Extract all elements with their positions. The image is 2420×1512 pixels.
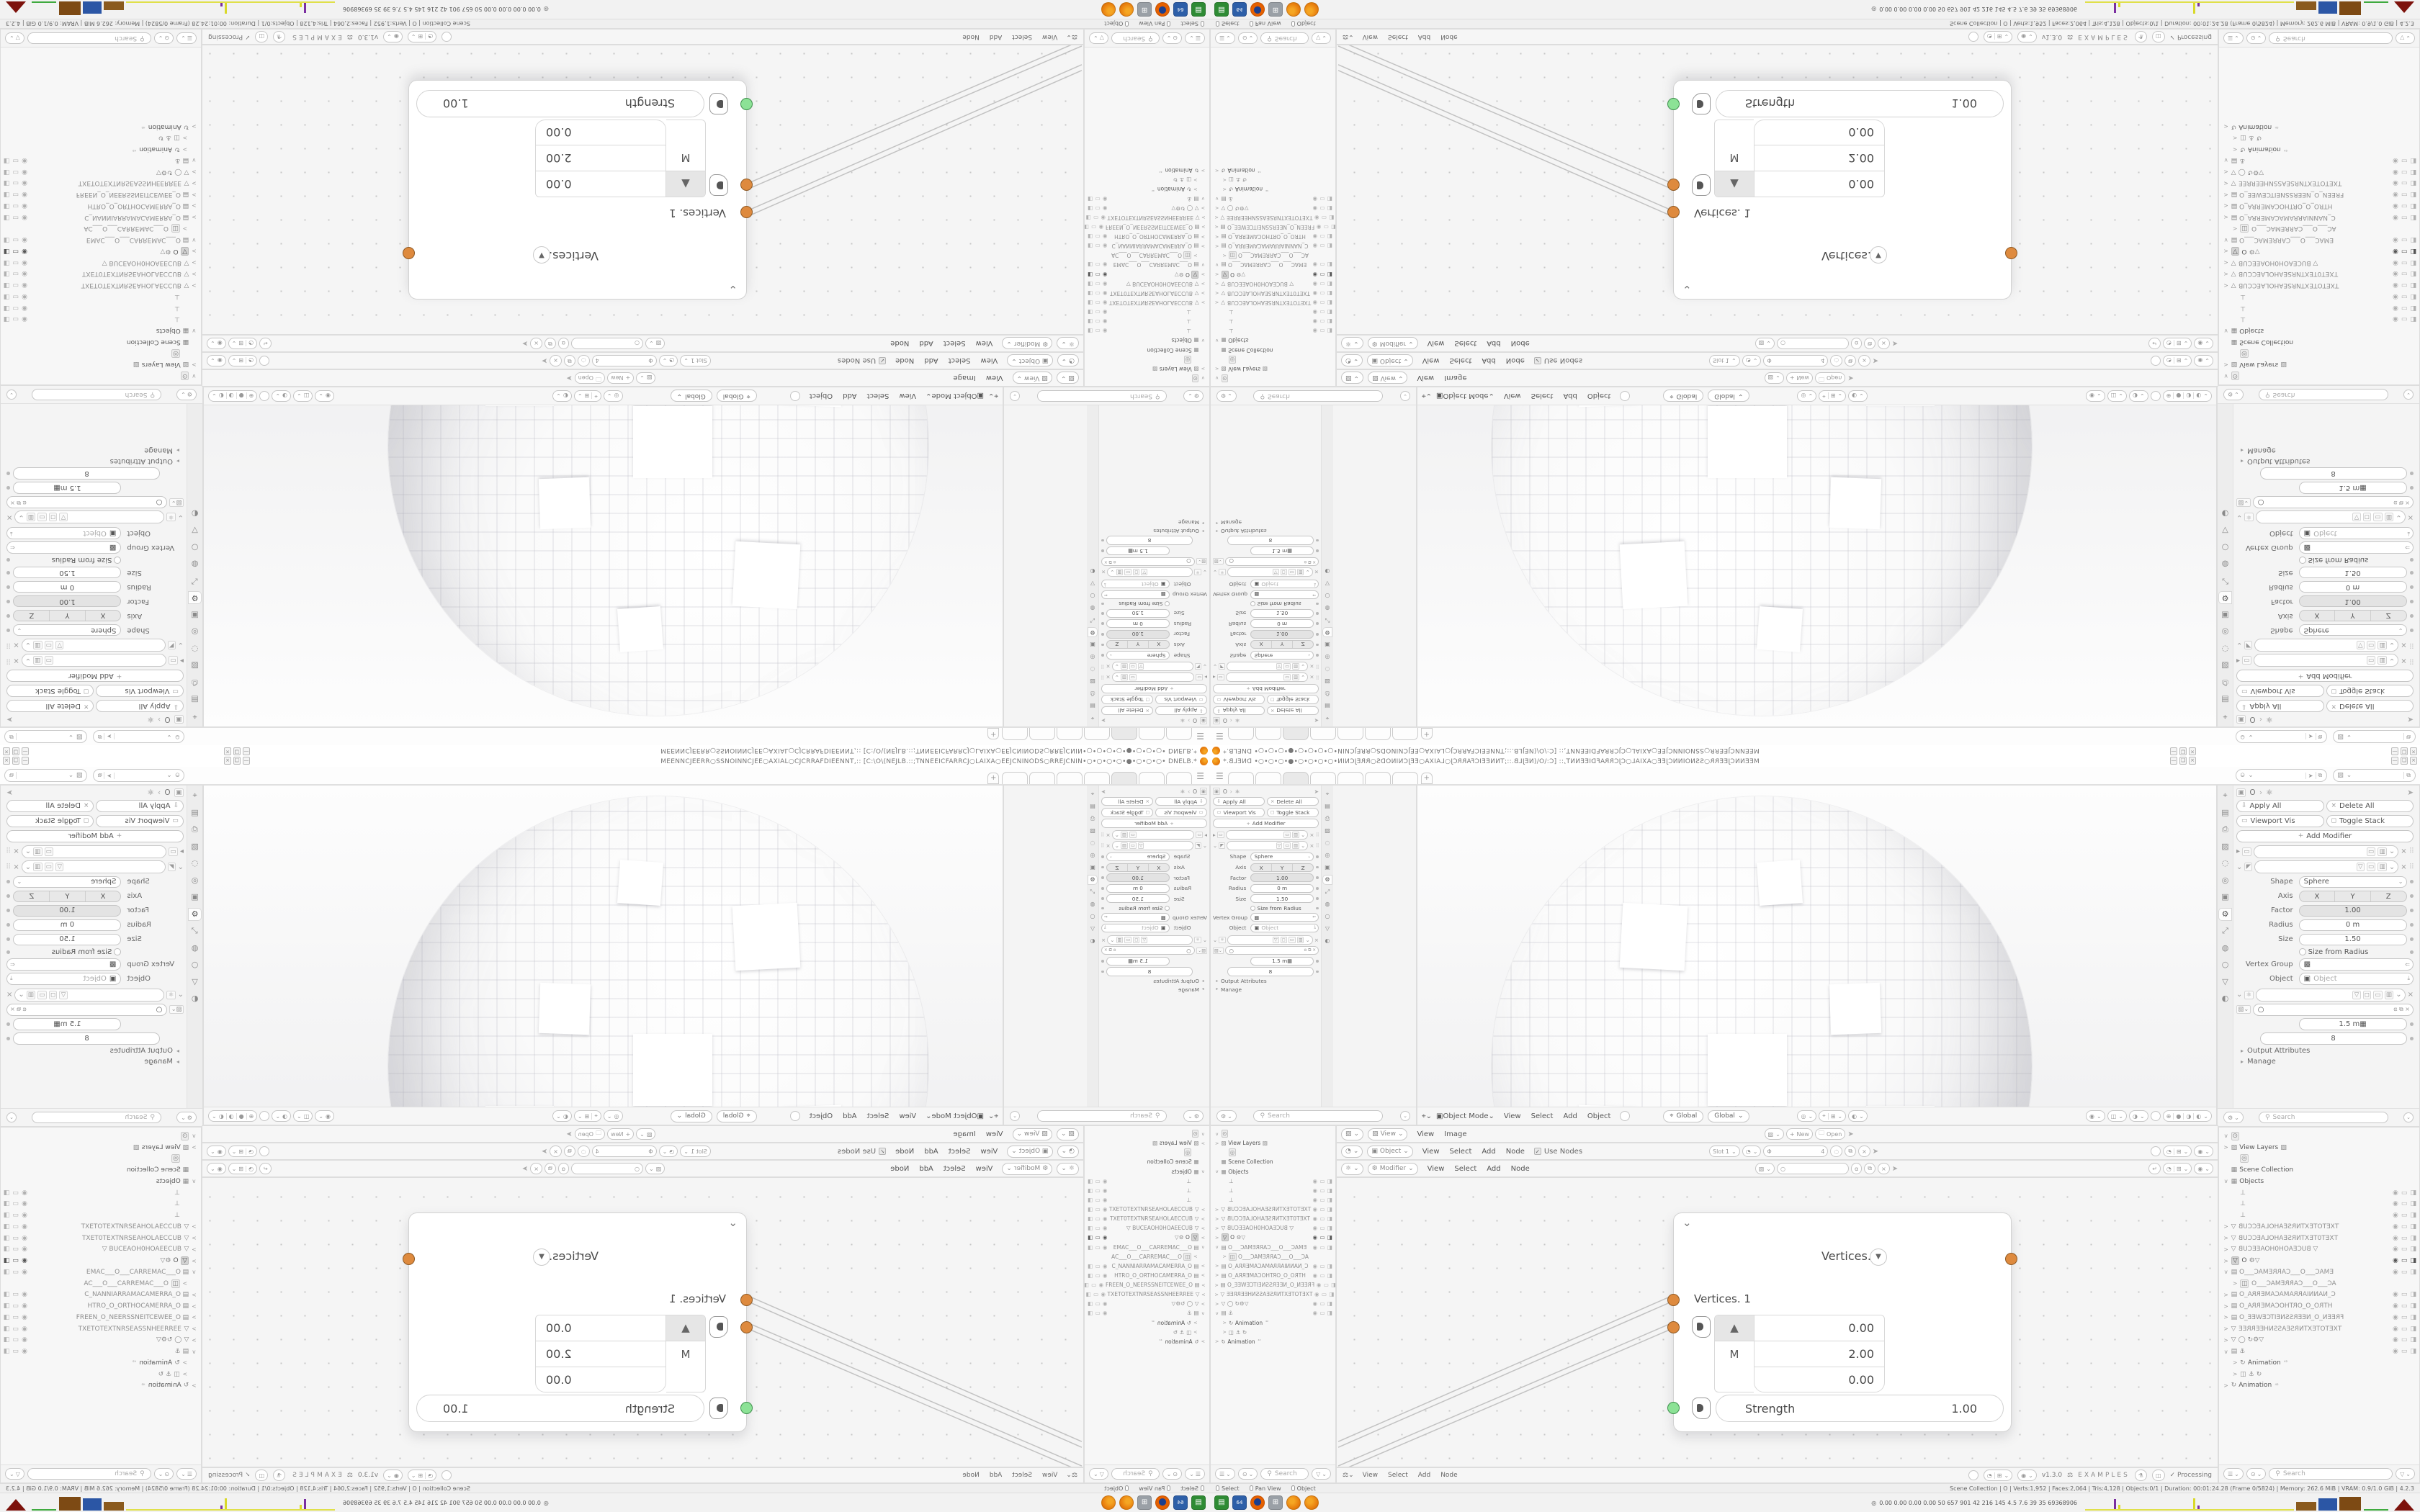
visibility-toggles[interactable]: ◉▭◨ [1313,281,1332,287]
proportional-circle[interactable] [2151,1146,2161,1156]
output-attributes-panel[interactable]: ▸Output Attributes [2236,457,2414,465]
outliner-row[interactable]: >▤HTRO_O_ORTHOCAMERRA_O◉▭◨ [2222,200,2416,212]
outliner-row[interactable]: >▽BUCEAOH0HOAEECUB▽◉▭◨ [4,1244,198,1256]
scene-selector[interactable]: ⎉⌄ ➤ ⧉ [2236,769,2327,782]
properties-tab-icon-3[interactable]: ▨ [189,660,202,672]
add-modifier-button[interactable]: +Add Modifier [1213,819,1319,828]
slot-selector[interactable]: Slot 1⌄ [680,1146,711,1157]
blender-app-icon[interactable] [1101,1495,1116,1510]
save64-app-icon[interactable]: 64 [1232,1495,1247,1510]
save-app-icon[interactable]: ▤ [1214,1495,1229,1510]
visibility-toggles[interactable]: ◉▭◨ [1314,1291,1334,1297]
shape-dropdown[interactable]: Sphere⌄ [1106,651,1170,660]
input-socket-vertices[interactable] [740,206,753,218]
workspace-tab-6[interactable] [1365,772,1391,784]
node-collapse-button[interactable]: ▼ [533,246,550,264]
close-button[interactable]: × [224,757,231,765]
gn-count-field[interactable]: 8 [14,467,161,480]
outliner-row[interactable]: v⊙ [1214,374,1332,383]
properties-tab-icon-6[interactable]: ▣ [1088,863,1098,872]
reroute-icon[interactable]: ↵ [259,1163,272,1174]
size-field[interactable]: 1.50 [14,567,122,579]
toggle-stack-button[interactable]: ◻Toggle Stack [2326,685,2414,698]
strength-field[interactable]: Strength 1.00 [1716,90,2004,117]
outliner-row[interactable]: >▤HTRO_O_ORTHOCAMERRA_O◉▭◨ [1214,232,1332,241]
slot-selector[interactable]: Slot 1⌄ [1709,1146,1740,1157]
properties-tab-icon-9[interactable]: ◍ [1088,603,1098,612]
workspace-tab-4[interactable] [1310,728,1336,740]
outliner-row[interactable]: >↻Animation⁴² [1214,1318,1332,1328]
image-browse[interactable]: ▨⌄ [1765,372,1784,384]
menu-view[interactable]: View [899,1112,916,1120]
menu-object[interactable]: Object [1587,392,1611,400]
outliner-row[interactable]: >▽BUCEAOH0HOAEECUB▽◉▭◨ [1214,279,1332,289]
shield-icon[interactable]: ◌ [1830,355,1842,366]
outliner-row[interactable]: v▦Objects [2222,1176,2416,1187]
outliner-row[interactable]: >▤C_NANNIARRAMACAMERRA_O◉▭◨ [4,1290,198,1301]
blender-app-icon[interactable] [1304,1495,1319,1510]
visibility-toggles[interactable]: ◉▭◨ [1313,1310,1332,1316]
toggle-stack-button[interactable]: ◻Toggle Stack [6,815,94,828]
maximize-button[interactable]: ❏ [233,747,241,755]
use-nodes-checkbox[interactable]: ✓Use Nodes [1534,357,1582,365]
outliner-row[interactable]: v▤⚓◉▭◨ [2222,155,2416,166]
vector-z-field[interactable]: 0.00 [535,120,666,145]
visibility-toggle[interactable]: ◉⌄ [2086,390,2105,402]
search-input[interactable]: ⚲Search [1253,1110,1383,1122]
gizmo-toggle[interactable]: ◐⌄ [552,390,572,402]
outliner-row[interactable]: ⊥◉▭◨ [1214,307,1332,317]
size-from-radius-radio[interactable] [1250,601,1255,606]
texture-context[interactable]: ▣Object⌄ [1007,355,1052,367]
tool-icon[interactable]: ⚗ [2135,1470,2147,1481]
outliner-row[interactable]: >▽TXETOTEXTNRSEAHOLAECCUB◉▭◨ [1088,298,1206,307]
factor-slider[interactable]: 1.00 [14,905,122,917]
close-icon[interactable]: × [1309,842,1314,849]
gn-context[interactable]: ⚙Modifier⌄ [1002,1163,1052,1175]
minimize-button[interactable]: — [2170,757,2177,765]
radius-field[interactable]: 0 m [1106,619,1170,628]
input-socket-vertices[interactable] [1667,1294,1680,1306]
xray-toggle[interactable]: ◑⌄ [272,1110,291,1122]
properties-tab-icon-12[interactable]: ◐ [1088,937,1098,945]
transform-orientation-2[interactable]: Global⌄ [1708,1110,1749,1122]
image-browse[interactable]: ▨⌄ [1765,1128,1784,1140]
new-image-button[interactable]: + New [607,1128,634,1140]
snap-toggle[interactable]: ◔⊞⌄ [228,355,257,366]
axis-buttons[interactable]: XYZ [1250,640,1314,649]
shape-dropdown[interactable]: Sphere⌄ [1106,852,1170,861]
outliner-row[interactable]: ◎ [4,1153,198,1165]
properties-tab-icon-5[interactable]: ◎ [189,875,202,887]
close-icon[interactable]: × [2401,863,2406,871]
nodetree-icon[interactable]: ▧⌄ [2236,498,2251,507]
menu-add[interactable]: Add [1418,1472,1430,1479]
snap-toggle[interactable]: ◔⊞⌄ [408,31,436,42]
properties-tab-icon-5[interactable]: ◎ [1088,851,1098,860]
outliner-row[interactable]: ⊥◉▭◨ [4,1199,198,1210]
visibility-toggle[interactable]: ◉⌄ [315,1110,334,1122]
visibility-toggles[interactable]: ◉▭◨ [1088,1244,1107,1251]
outliner-row[interactable]: >▽O⚙▽◉▭◨ [4,246,198,257]
outliner-row[interactable]: >↻Animation⁴² [4,1357,198,1369]
gn-count-field[interactable]: 8 [2260,467,2407,480]
close-icon[interactable]: × [1309,663,1314,670]
outliner-row[interactable]: >▽TXETOTEXTNRSEASSNHEERREE◉▭◨ [1088,1290,1206,1299]
search-input[interactable]: ⚲Search [32,1112,161,1123]
outliner-row[interactable]: >▽◯ ↻⚙▽◉▭◨ [1088,1299,1206,1308]
app-menu-icon[interactable]: ☰ [1196,731,1204,741]
overlays-toggle[interactable]: ◉⌄ [2194,1163,2213,1174]
menu-view[interactable]: View [1417,1130,1434,1138]
outliner-row[interactable]: v▤EMAC___O___CARREMAC___O◉▭◨ [4,1266,198,1278]
visibility-toggles[interactable]: ◉▭◨ [1313,271,1332,278]
properties-tab-icon-9[interactable]: ◍ [1323,900,1332,909]
filter-button[interactable]: ▽⌄ [1312,32,1331,44]
slot-selector[interactable]: Slot 1⌄ [680,355,711,366]
outliner-row[interactable]: >◫AC___O___CARREMAC___O [2222,1278,2416,1290]
viewport-vis-button[interactable]: ▭Viewport Vis [2236,685,2324,698]
gn-length-field[interactable]: 1.5 m▦ [1106,546,1170,555]
outliner-row[interactable]: >▽BUCEAOH0HOAEECUB▽◉▭◨ [1088,279,1206,289]
visibility-toggles[interactable]: ◉▭◨ [1088,1225,1107,1231]
outliner-row[interactable]: >▤FREEN_O_NEERSSNEITCEWEE_O◉▭◨ [1214,1280,1332,1290]
visibility-toggles[interactable]: ◉▭◨ [1088,1263,1107,1269]
outliner-row[interactable]: ◎ [2222,348,2416,359]
outliner-row[interactable]: >▽TXET0TEXTNRSEAHOLAECCUB◉▭◨ [1214,289,1332,298]
active-tool-circle[interactable] [1620,1111,1630,1121]
properties-tab-icon-10[interactable]: ○ [1323,912,1332,921]
visibility-toggles[interactable]: ◉▭◨ [4,1189,27,1197]
display-mode-button[interactable]: ☰⌄ [176,32,197,44]
visibility-toggles[interactable]: ◉▭◨ [2393,179,2416,186]
outliner-row[interactable]: >▤HTRO_O_ORTHOCAMERRA_O◉▭◨ [4,200,198,212]
visibility-toggles[interactable]: ◉▭◨ [2393,1223,2416,1230]
outliner-row[interactable]: >▽TXETOTEXTNRSEASSNHEERREE◉▭◨ [1214,1290,1332,1299]
snap-toggle[interactable]: ⌖⊞⌄ [574,390,601,402]
xray-toggle[interactable]: ◑⌄ [272,390,291,402]
outliner-row[interactable]: >◫AC___O___CARREMAC___O [1088,1252,1206,1261]
filter-button[interactable]: ▽⌄ [1089,1468,1108,1480]
texture-name-field[interactable]: Φ4 [1763,1146,1828,1157]
slot-selector[interactable]: Slot 1⌄ [1709,355,1740,366]
close-button[interactable]: × [224,747,231,755]
properties-tab-icon-11[interactable]: ▽ [1323,924,1332,933]
size-field[interactable]: 1.50 [1250,609,1314,618]
menu-select[interactable]: Select [867,1112,889,1120]
visibility-toggles[interactable]: ◉▭◨ [4,305,27,312]
search-input[interactable]: ⚲Search [2259,1112,2388,1123]
visibility-toggles[interactable]: ◉▭◨ [1313,1234,1332,1241]
save-app-icon[interactable]: ▤ [1191,2,1206,17]
visibility-toggles[interactable]: ◉▭◨ [4,1302,27,1310]
snap-toggle[interactable]: ◔⊞⌄ [1984,1470,2012,1481]
pin-icon[interactable]: ➤ [1314,718,1319,724]
filter-button[interactable]: ▽⌄ [2396,32,2415,44]
menu-view[interactable]: View [976,1165,993,1173]
visibility-toggles[interactable]: ◉▭◨ [1088,1272,1107,1279]
search-input[interactable]: ⚲Search [27,32,151,44]
visibility-toggles[interactable]: ◉▭◨ [2393,214,2416,221]
menu-image[interactable]: Image [953,1130,975,1138]
visibility-toggles[interactable]: ◉▭◨ [2393,315,2416,323]
close-icon[interactable]: × [2408,991,2414,999]
fake-user-icon[interactable]: ⍺ [1851,1163,1862,1174]
display-options-button[interactable]: ⚙⌄ [1183,390,1204,402]
visibility-toggles[interactable]: ◉▭◨ [2393,1257,2416,1264]
visibility-toggles[interactable]: ◉▭◨ [1313,261,1332,268]
gn-length-field[interactable]: 1.5 m▦ [2299,1018,2407,1030]
properties-tab-icon-11[interactable]: ▽ [1323,579,1332,588]
properties-tab-icon-11[interactable]: ▽ [2219,524,2232,536]
output-socket[interactable] [403,1253,415,1265]
copy-icon[interactable]: ⧉ [1845,1146,1856,1157]
visibility-toggles[interactable]: ◉▭◨ [4,315,27,323]
filter-button[interactable]: ▽⌄ [5,32,24,44]
node-group-field[interactable]: ○ ⍺ ⧉ × [6,496,167,508]
visibility-toggles[interactable]: ◉▭◨ [1088,233,1107,240]
manage-panel[interactable]: ▸Manage [2236,446,2414,454]
nodetree-icon[interactable]: ▧⌄ [1196,558,1207,564]
outliner-row[interactable]: v▦Objects [4,1176,198,1187]
pin-icon[interactable]: ➤ [6,788,13,797]
shading-modes[interactable]: ⊕●◑◐⌄ [208,1110,257,1122]
gn-length-field[interactable]: 1.5 m▦ [14,1018,122,1030]
radius-field[interactable]: 0 m [2299,919,2407,932]
nodetree-name-field[interactable]: ○ [1777,338,1849,349]
outliner-row[interactable]: ⊥◉▭◨ [1214,317,1332,326]
scene-mode-button[interactable]: ⊙⌄ [2246,32,2266,44]
properties-tab-icon-4[interactable]: ◌ [2219,643,2232,655]
visibility-toggles[interactable]: ◉▭◨ [1313,1215,1332,1222]
editor-type-selector[interactable]: ▨⌄ [1341,372,1363,384]
vector-z-field[interactable]: 0.00 [1754,1367,1885,1392]
properties-tab-icon-12[interactable]: ◐ [2219,508,2232,520]
workspace-tab-6[interactable] [1365,728,1391,740]
blender-app-icon[interactable] [1286,1495,1301,1510]
outliner-row[interactable]: ▦Scene Collection [1088,346,1206,355]
open-image-button[interactable]: 🗀 Open [575,372,605,384]
editor-type-selector[interactable]: ⌖⌄ [988,1112,998,1120]
outliner-row[interactable]: ⊥◉▭◨ [1088,1195,1206,1205]
proportional-edit-toggle[interactable]: ◎⌄ [1797,1110,1816,1122]
node-group-field[interactable]: ○ ⍺ ⧉ × [1225,557,1319,566]
nodetree-name-field[interactable]: ○ [571,338,643,349]
object-field[interactable]: ▣Object⤓ [1101,924,1170,932]
visibility-toggles[interactable]: ◉▭◨ [2393,1314,2416,1321]
factor-slider[interactable]: 1.00 [1250,630,1314,639]
display-options-button[interactable]: ⚙⌄ [1183,1110,1204,1122]
menu-add[interactable]: Add [1482,1148,1495,1156]
window-icon[interactable]: ◫ [2152,31,2165,42]
visibility-toggles[interactable]: ◉▭◨ [2393,1326,2416,1333]
visibility-toggles[interactable]: ◉▭◨ [1313,1206,1332,1212]
outliner-row[interactable]: >▤C_NANNIARRAMACAMERRA_O◉▭◨ [4,212,198,223]
size-from-radius-radio[interactable] [2299,948,2306,955]
gn-count-field[interactable]: 8 [2260,1032,2407,1045]
shading-circle[interactable] [2151,1111,2161,1121]
proportional-circle[interactable] [442,32,452,42]
copy-icon[interactable]: ⧉ [1864,338,1875,349]
visibility-toggles[interactable]: ◉▭◨ [1088,271,1107,278]
close-icon[interactable]: × [1309,674,1314,680]
outliner-row[interactable]: >↻Animation⁴² [2222,1380,2416,1392]
mode-selector[interactable]: ▣Object Mode⌄ [1436,392,1494,400]
field-toggle-icon[interactable] [1692,1398,1711,1419]
properties-tab-icon-7[interactable]: ⚙ [189,592,202,604]
outliner-row[interactable]: >▽TXETOTEXTNRSEASSNHEERREE◉▭◨ [2222,178,2416,189]
delete-all-button[interactable]: ×Delete All [2326,700,2414,713]
outliner-row[interactable]: >▽◯ ↻⚙▽◉▭◨ [1088,204,1206,213]
calculator-icon[interactable]: ⊞ [1137,1495,1152,1510]
add-workspace-button[interactable]: + [987,728,999,739]
transform-orientation-2[interactable]: Global⌄ [671,390,712,402]
outliner-row[interactable]: >▽◯ ↻⚙▽◉▭◨ [1214,1299,1332,1308]
window-icon[interactable]: ◫ [2152,1470,2165,1481]
scene-name-field[interactable] [115,732,165,741]
properties-tab-icon-5[interactable]: ◎ [189,626,202,638]
gn-length-field[interactable]: 1.5 m▦ [1106,957,1170,966]
menu-add[interactable]: Add [924,357,938,365]
outliner-row[interactable]: >▽O⚙▽◉▭◨ [1214,270,1332,279]
visibility-toggles[interactable]: ◉▭◨ [1088,1310,1107,1316]
node-group-field[interactable]: ○ ⍺ ⧉ × [2253,1004,2414,1016]
outliner-row[interactable]: >▨View Layers▨ [2222,1142,2416,1153]
minimize-button[interactable]: — [22,747,29,755]
outliner-row[interactable]: ▦Scene Collection [1214,346,1332,355]
visibility-toggles[interactable]: ◉▭◨ [1317,1282,1335,1288]
properties-tab-icon-7[interactable]: ⚙ [1088,876,1098,884]
input-socket-vector[interactable] [740,1321,753,1333]
outliner-row[interactable]: >▽TXETOTEXTNRSEAHOLAECCUB◉▭◨ [2222,279,2416,291]
visibility-toggles[interactable]: ◉▭◨ [4,1257,27,1264]
properties-tab-icon-3[interactable]: ▨ [189,841,202,853]
close-icon[interactable]: × [13,847,19,855]
output-attributes-panel[interactable]: ▸Output Attributes [6,457,184,465]
properties-tab-icon-1[interactable]: ▤ [2219,807,2232,819]
close-icon[interactable]: × [1309,832,1314,838]
transform-orientation[interactable]: ⌖Global [1663,390,1703,402]
field-toggle-icon[interactable] [1692,93,1711,114]
snap-toggle[interactable]: ◔⊞⌄ [228,1163,257,1174]
outliner-row[interactable]: v▤EMAC___O___CARREMAC___O◉▭◨ [2222,1266,2416,1278]
field-toggle-icon[interactable] [709,1316,728,1338]
workspace-tab-4[interactable] [1310,772,1336,784]
properties-tab-icon-0[interactable]: ⌖ [2219,790,2232,802]
object-field[interactable]: ▣Object⤓ [1101,580,1170,588]
expand-vector-button[interactable]: ▲ [1715,171,1754,197]
search-input[interactable]: ⚲Search [1260,32,1309,44]
editor-type-selector[interactable]: ▨⌄ [1057,1128,1079,1140]
outliner-row[interactable]: >↻Animation⁴² [1214,1337,1332,1346]
editor-type-selector[interactable]: ⚛⌄ [1057,338,1079,350]
visibility-toggles[interactable]: ◉▭◨ [1313,196,1332,202]
visibility-toggles[interactable]: ◉▭◨ [1088,1206,1107,1212]
close-icon[interactable]: × [1314,569,1319,575]
outliner-row[interactable]: v▤⚓◉▭◨ [1214,194,1332,204]
outliner-row[interactable]: v⊙ [4,1130,198,1142]
outliner-row[interactable]: >↻Animation⁴² [1088,1318,1206,1328]
add-modifier-button[interactable]: +Add Modifier [1101,684,1207,693]
outliner-row[interactable]: v▤⚓◉▭◨ [4,155,198,166]
snap-toggle[interactable]: ⌖⊞⌄ [574,1110,601,1122]
outliner-row[interactable]: >▤C_NANNIARRAMACAMERRA_O◉▭◨ [1214,1261,1332,1271]
visibility-toggles[interactable]: ◉▭◨ [1088,300,1107,306]
properties-tab-icon-6[interactable]: ▣ [1323,640,1332,649]
visibility-toggles[interactable]: ◉▭◨ [2393,157,2416,164]
properties-tab-icon-0[interactable]: ⌖ [189,711,202,723]
editor-type-selector[interactable]: ◔⌄ [1341,355,1363,367]
properties-tab-icon-10[interactable]: ○ [1088,591,1098,600]
scene-selector[interactable]: ⎉⌄ ➤ ⧉ [2236,730,2327,743]
visibility-toggles[interactable]: ◉▭◨ [4,248,27,255]
menu-select[interactable]: Select [1388,33,1408,40]
properties-tab-icon-5[interactable]: ◎ [1323,652,1332,661]
reroute-icon[interactable]: ↵ [2148,1163,2161,1174]
outliner-row[interactable]: ⊥◉▭◨ [1088,1186,1206,1195]
unlink-icon[interactable]: × [1858,355,1870,366]
nodetree-icon[interactable]: ▧⌄ [169,1005,184,1014]
viewlayer-selector[interactable]: ▨⌄ ⧉ [4,769,87,782]
properties-tab-icon-8[interactable]: ⤢ [2219,925,2232,937]
menu-select[interactable]: Select [1454,1165,1476,1173]
visibility-toggles[interactable]: ◉▭◨ [1088,205,1107,212]
copy-icon[interactable]: ⧉ [7,733,17,740]
editor-type-selector[interactable]: ◔⌄ [1341,1146,1363,1158]
visibility-toggles[interactable]: ◉▭◨ [2393,202,2416,210]
outliner-row[interactable]: >▽TXETOTEXTNRSEAHOLAECCUB◉▭◨ [1088,1205,1206,1214]
outliner-row[interactable]: ◎ [2222,1153,2416,1165]
visibility-toggles[interactable]: ◉▭◨ [1088,261,1107,268]
search-input[interactable]: ⚲Search [1260,1468,1309,1480]
visibility-toggles[interactable]: ◉▭◨ [4,202,27,210]
viewlayer-selector[interactable]: ▨⌄ ⧉ [4,730,87,743]
scene-mode-button[interactable]: ⊙⌄ [154,32,174,44]
vertex-group-field[interactable]: ▩⇐ [1250,590,1319,599]
menu-view[interactable]: View [980,1148,998,1156]
minimize-button[interactable]: — [243,757,250,765]
visibility-toggles[interactable]: ◉▭◨ [4,1326,27,1333]
manage-panel[interactable]: ▸Manage [2236,1058,2414,1066]
outliner-row[interactable]: >▽◯ ↻⚙▽◉▭◨ [2222,1335,2416,1346]
properties-tab-icon-4[interactable]: ◌ [2219,858,2232,870]
filter-button[interactable]: ▽⌄ [2396,1468,2415,1480]
menu-add[interactable]: Add [843,392,856,400]
menu-object[interactable]: Object [1587,1112,1611,1120]
outliner-row[interactable]: ▦Scene Collection [1088,1157,1206,1166]
menu-node[interactable]: Node [962,1472,980,1479]
outliner-row[interactable]: v⊙ [1088,1129,1206,1138]
properties-tab-icon-4[interactable]: ◌ [189,643,202,655]
texture-name-field[interactable]: Φ4 [1763,355,1828,366]
maximize-button[interactable]: ❏ [12,757,19,765]
delete-all-button[interactable]: ×Delete All [6,700,94,713]
visibility-toggles[interactable]: ◉▭◨ [1088,1187,1107,1194]
active-tool-circle[interactable] [790,1111,800,1121]
visibility-toggles[interactable]: ◉▭◨ [4,1336,27,1344]
outliner-row[interactable]: >↻Animation⁴² [2222,121,2416,132]
editor-type-selector[interactable]: ⚛⌄ [1341,1163,1363,1175]
display-mode-button[interactable]: ☰⌄ [2223,32,2244,44]
mode-selector[interactable]: ▣Object Mode⌄ [1436,1112,1494,1120]
firefox-icon[interactable] [1250,2,1265,17]
active-tool-circle[interactable] [790,391,800,401]
menu-select[interactable]: Select [1454,340,1476,348]
outliner-row[interactable]: >◫⚓ ↻ [1214,175,1332,184]
properties-tab-icon-12[interactable]: ◐ [189,508,202,520]
outliner-row[interactable]: ⊥◉▭◨ [2222,1210,2416,1221]
transform-orientation[interactable]: ⌖Global [717,390,757,402]
